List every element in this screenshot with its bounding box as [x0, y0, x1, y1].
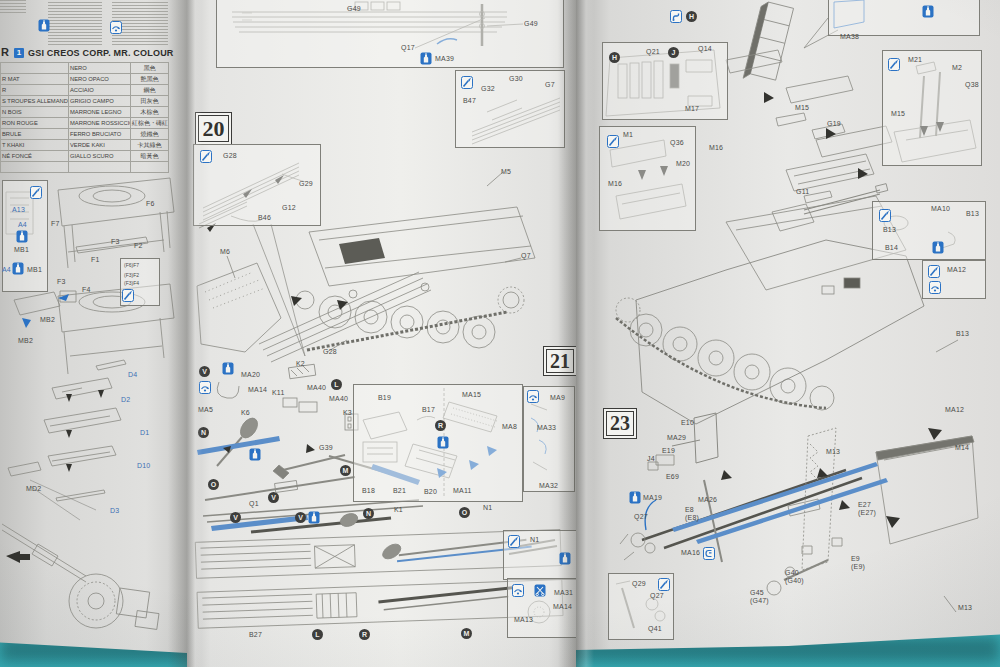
photo-of-model-kit-instructions: R 1 GSI CREOS CORP. MR. COLOUR NERO黑色 R … — [0, 0, 1000, 667]
part-label-q21: Q21 — [646, 48, 660, 56]
paint-brush-icon — [607, 135, 619, 148]
part-label-ma11: MA11 — [453, 487, 472, 495]
paint-brush-icon — [928, 265, 940, 278]
tool-icon — [670, 10, 682, 23]
paint-brush-icon — [30, 186, 42, 199]
option-arrow-icon — [527, 390, 539, 403]
circled-letter-o: O — [459, 507, 470, 518]
circled-letter-n: N — [363, 508, 374, 519]
paint-brush-icon — [200, 150, 212, 163]
part-label-k11: K11 — [272, 389, 285, 397]
part-label-b13: B13 — [883, 226, 896, 234]
jig-note-line: (F3)F4 — [124, 279, 139, 287]
part-label-e19: E19 — [662, 447, 675, 455]
part-label-k3: K3 — [343, 409, 352, 417]
part-label-m16: M16 — [709, 144, 723, 152]
paint-brush-icon — [508, 535, 520, 548]
part-label-f1: F1 — [91, 256, 100, 264]
part-label-ma39: MA39 — [435, 55, 454, 63]
part-label-g32: G32 — [481, 85, 495, 93]
jig-note-line: (F3)F2 — [124, 271, 139, 279]
part-label-b20: B20 — [424, 488, 437, 496]
part-label-m15: M15 — [891, 110, 905, 118]
part-label-m5: M5 — [501, 168, 511, 176]
part-label-b21: B21 — [393, 487, 406, 495]
part-label-ma33: MA33 — [537, 424, 556, 432]
part-label-ma9: MA9 — [550, 394, 565, 402]
part-label-m1: M1 — [623, 131, 633, 139]
part-label-e9: E9 (E9) — [851, 555, 865, 571]
part-label-m13: M13 — [958, 604, 972, 612]
ammo-rack-inset-box — [602, 42, 728, 120]
part-label-d2: D2 — [121, 396, 130, 404]
middle-page: G49 G49 Q17 MA39 20 G28 G29 G12 B46 M6 M… — [187, 0, 576, 667]
part-label-m16: M16 — [608, 180, 622, 188]
part-label-b17: B17 — [422, 406, 435, 414]
glue-bottle-icon — [922, 5, 934, 18]
circled-letter-m: M — [461, 628, 472, 639]
part-label-m15: M15 — [795, 104, 809, 112]
part-label-q27: Q27 — [650, 592, 664, 600]
part-label-a4: A4 — [18, 221, 27, 229]
part-label-ma5: MA5 — [198, 406, 213, 414]
part-label-q38: Q38 — [965, 81, 979, 89]
glue-bottle-icon — [308, 511, 320, 524]
part-label-ma16: MA16 — [681, 549, 700, 557]
part-label-g7: G7 — [545, 81, 555, 89]
part-label-ma26: MA26 — [698, 496, 717, 504]
left-page: R 1 GSI CREOS CORP. MR. COLOUR NERO黑色 R … — [0, 0, 187, 653]
circled-letter-m: M — [340, 465, 351, 476]
part-label-f7: F7 — [51, 220, 60, 228]
glue-bottle-icon — [38, 19, 50, 32]
part-label-d4: D4 — [128, 371, 137, 379]
part-label-b27: B27 — [249, 631, 262, 639]
circled-letter-v: V — [268, 492, 279, 503]
part-label-g30: G30 — [509, 75, 523, 83]
circled-letter-r: R — [359, 629, 370, 640]
part-label-b13: B13 — [956, 330, 969, 338]
part-label-ma14: MA14 — [553, 603, 572, 611]
glue-bottle-icon — [420, 52, 432, 65]
part-label-g49: G49 — [347, 5, 361, 13]
part-label-k1: K1 — [394, 506, 403, 514]
part-label-ma8: MA8 — [502, 423, 517, 431]
option-arrow-icon — [929, 281, 941, 294]
part-label-q41: Q41 — [648, 625, 662, 633]
part-label-k2: K2 — [296, 360, 305, 368]
part-label-q27: Q27 — [634, 513, 648, 521]
step-20-number: 20 — [195, 112, 232, 145]
part-label-m17: M17 — [685, 105, 699, 113]
step-23-number: 23 — [603, 408, 637, 439]
glue-bottle-icon — [559, 552, 571, 565]
part-label-n1: N1 — [483, 504, 492, 512]
part-label-ma31: MA31 — [554, 589, 573, 597]
part-label-ma38: MA38 — [840, 33, 859, 41]
part-label-g39: G39 — [319, 444, 333, 452]
part-label-ma40: MA40 — [307, 384, 326, 392]
part-label-m21: M21 — [908, 56, 922, 64]
part-label-mb1: MB1 — [27, 266, 42, 274]
circled-letter-h: H — [686, 11, 697, 22]
part-label-g45: G45 (G47) — [750, 589, 769, 605]
circled-letter-r: R — [435, 420, 446, 431]
part-label-f6: F6 — [146, 200, 155, 208]
glue-bottle-icon — [437, 436, 449, 449]
part-label-q29: Q29 — [632, 580, 646, 588]
part-label-m14: M14 — [955, 444, 969, 452]
part-label-b18: B18 — [362, 487, 375, 495]
part-label-ma19: MA19 — [643, 494, 662, 502]
jig-note-line: (F6)F7 — [124, 261, 139, 269]
part-label-g12: G12 — [282, 204, 296, 212]
circled-letter-o: O — [208, 479, 219, 490]
part-label-d3: D3 — [110, 507, 119, 515]
part-label-q14: Q14 — [698, 45, 712, 53]
part-label-d10: D10 — [137, 462, 150, 470]
part-label-b19: B19 — [378, 394, 391, 402]
circled-letter-v: V — [230, 512, 241, 523]
part-label-e69: E69 — [666, 473, 679, 481]
option-arrow-icon — [512, 584, 524, 597]
header-prefix: R — [1, 46, 9, 58]
part-label-f3: F3 — [111, 238, 120, 246]
glue-bottle-icon — [12, 262, 24, 275]
part-label-e27: E27 (E27) — [858, 501, 876, 517]
part-label-q1: Q1 — [249, 500, 259, 508]
paint-brush-icon — [461, 76, 473, 89]
top-inset-box — [216, 0, 564, 68]
part-label-b46: B46 — [258, 214, 271, 222]
part-label-a4: A4 — [2, 266, 11, 274]
paint-brush-icon — [888, 58, 900, 71]
glue-bottle-icon — [932, 241, 944, 254]
part-label-ma29: MA29 — [667, 434, 686, 442]
circled-letter-h: H — [609, 52, 620, 63]
circled-letter-n: N — [198, 427, 209, 438]
part-label-mb2: MB2 — [18, 337, 33, 345]
step-21-number: 21 — [543, 346, 577, 376]
part-label-ma10: MA10 — [931, 205, 950, 213]
part-label-q17: Q17 — [401, 44, 415, 52]
part-label-g40: G40 (G40) — [785, 569, 804, 585]
part-label-e8: E8 (E8) — [685, 506, 699, 522]
right-page: H H Q21 J Q14 M17 MA38 M21 M2 Q38 M15 M1… — [576, 0, 1000, 650]
part-label-f4: F4 — [82, 286, 91, 294]
part-label-ma12: MA12 — [947, 266, 966, 274]
part-label-q7: Q7 — [521, 252, 531, 260]
part-label-g28: G28 — [223, 152, 237, 160]
part-label-m2: M2 — [952, 64, 962, 72]
glue-bottle-icon — [222, 362, 234, 375]
part-label-ma40: MA40 — [329, 395, 348, 403]
circled-letter-l: L — [312, 629, 323, 640]
circled-letter-v: V — [199, 366, 210, 377]
glue-bottle-icon — [16, 230, 28, 243]
part-label-mb1: MB1 — [14, 246, 29, 254]
part-label-ma13: MA13 — [514, 616, 533, 624]
part-label-m13: M13 — [826, 448, 840, 456]
part-label-q36: Q36 — [670, 139, 684, 147]
number-1-badge: 1 — [14, 48, 24, 58]
ma38-callout-box — [828, 0, 980, 36]
part-label-ma20: MA20 — [241, 371, 260, 379]
part-label-g29: G29 — [299, 180, 313, 188]
part-label-g19: G19 — [827, 120, 841, 128]
part-label-b14: B14 — [885, 244, 898, 252]
tiny-print-block — [48, 2, 102, 46]
part-label-mb2: MB2 — [40, 316, 55, 324]
part-label-e10: E10 — [681, 419, 694, 427]
glue-bottle-icon — [629, 491, 641, 504]
part-label-j4: J4 — [647, 455, 655, 463]
part-label-ma14: MA14 — [248, 386, 267, 394]
circled-letter-j: J — [668, 47, 679, 58]
option-arrow-icon — [199, 381, 211, 394]
part-label-g49: G49 — [524, 20, 538, 28]
option-arrow-icon — [110, 21, 122, 34]
part-label-m6: M6 — [220, 248, 230, 256]
modify-icon — [534, 584, 546, 597]
part-label-g11: G11 — [796, 188, 809, 196]
part-label-a13: A13 — [12, 206, 25, 214]
part-label-ma15: MA15 — [462, 391, 481, 399]
part-label-d1: D1 — [140, 429, 149, 437]
part-label-ma32: MA32 — [539, 482, 558, 490]
circled-letter-l: L — [331, 379, 342, 390]
paint-color-chart: NERO黑色 R MATNERO OPACO艶黑色 RACCIAIO鋼色 S T… — [0, 62, 169, 173]
part-label-b13: B13 — [966, 210, 979, 218]
circled-letter-v: V — [295, 512, 306, 523]
paint-brand-title: GSI CREOS CORP. MR. COLOUR — [28, 48, 174, 58]
part-label-g28: G28 — [323, 348, 337, 356]
part-label-k6: K6 — [241, 409, 250, 417]
part-label-n1: N1 — [530, 536, 539, 544]
part-label-b47: B47 — [463, 97, 476, 105]
part-label-md2: MD2 — [26, 485, 41, 493]
part-label-ma12: MA12 — [945, 406, 964, 414]
paint-brush-icon — [879, 209, 891, 222]
color-fr — [1, 63, 69, 74]
part-label-f3: F3 — [57, 278, 66, 286]
paint-brush-icon — [122, 289, 134, 302]
tiny-print-block — [0, 0, 26, 14]
paint-brush-icon — [658, 578, 670, 591]
part-label-f2: F2 — [134, 242, 143, 250]
glue-bottle-icon — [249, 448, 261, 461]
clip-icon — [703, 547, 715, 560]
part-label-m20: M20 — [676, 160, 690, 168]
